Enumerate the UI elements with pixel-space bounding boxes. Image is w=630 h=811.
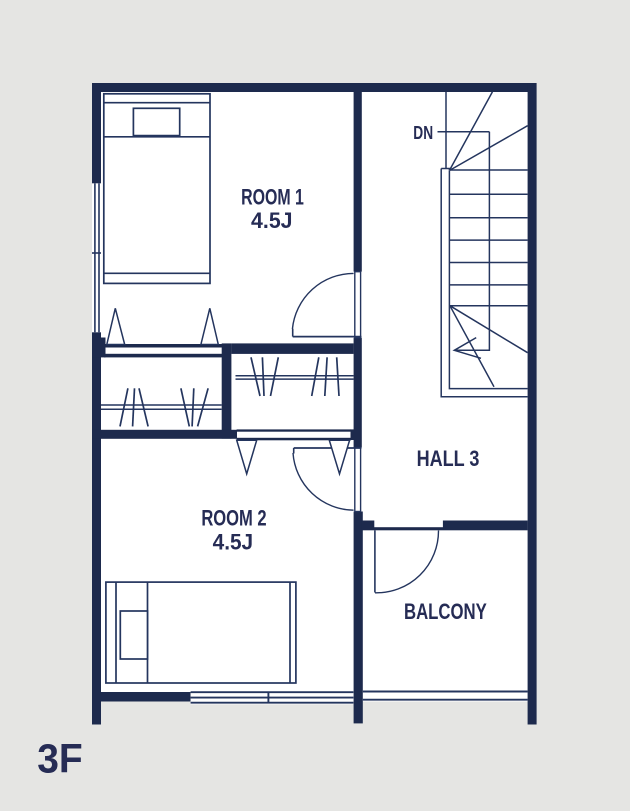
svg-text:BALCONY: BALCONY <box>404 599 487 624</box>
svg-text:ROOM 2: ROOM 2 <box>201 506 266 531</box>
svg-text:DN: DN <box>413 122 433 143</box>
svg-text:3F: 3F <box>37 736 83 782</box>
svg-text:ROOM 1: ROOM 1 <box>241 185 304 210</box>
svg-text:HALL 3: HALL 3 <box>417 446 480 471</box>
svg-text:4.5J: 4.5J <box>213 529 254 554</box>
svg-text:4.5J: 4.5J <box>251 208 293 233</box>
